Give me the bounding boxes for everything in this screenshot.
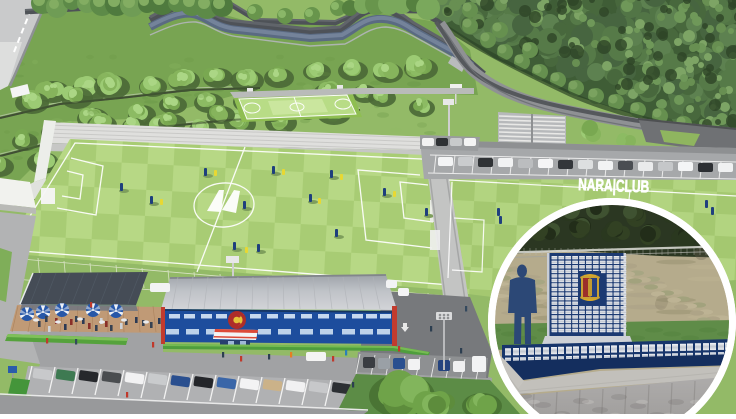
svg-text:NARA|CLUB: NARA|CLUB bbox=[578, 175, 650, 196]
